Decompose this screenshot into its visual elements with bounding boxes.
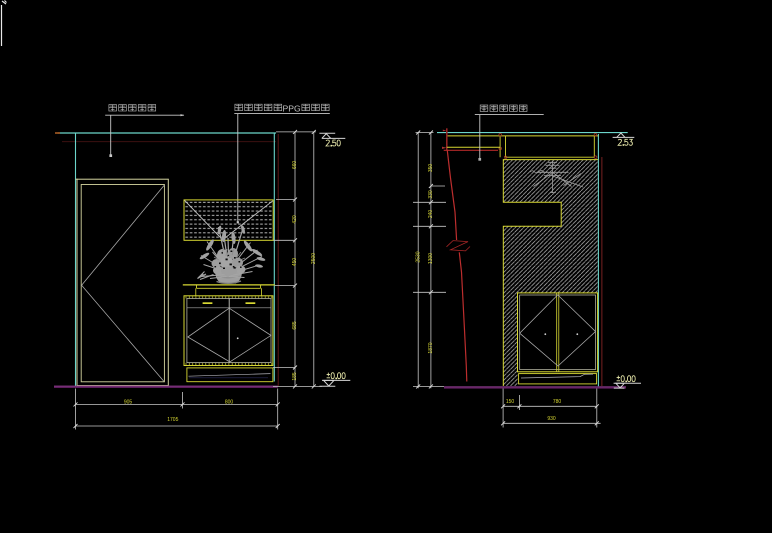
svg-text:930: 930 xyxy=(547,416,556,422)
svg-text:1300: 1300 xyxy=(428,253,434,264)
svg-text:1870: 1870 xyxy=(428,342,434,353)
svg-text:2500: 2500 xyxy=(311,253,317,264)
svg-text:800: 800 xyxy=(225,400,234,406)
svg-text:905: 905 xyxy=(124,400,133,406)
svg-text:660: 660 xyxy=(292,161,298,170)
svg-text:330: 330 xyxy=(428,190,434,199)
svg-text:PPG: PPG xyxy=(283,103,301,113)
svg-text:150: 150 xyxy=(506,399,515,405)
svg-text:685: 685 xyxy=(292,321,298,330)
svg-text:240: 240 xyxy=(428,210,434,219)
svg-text:185: 185 xyxy=(292,372,298,381)
svg-text:1705: 1705 xyxy=(167,417,178,423)
svg-text:450: 450 xyxy=(292,258,298,267)
svg-text:350: 350 xyxy=(428,164,434,173)
svg-text:420: 420 xyxy=(292,215,298,224)
svg-text:2530: 2530 xyxy=(415,251,421,262)
svg-text:780: 780 xyxy=(553,399,562,405)
